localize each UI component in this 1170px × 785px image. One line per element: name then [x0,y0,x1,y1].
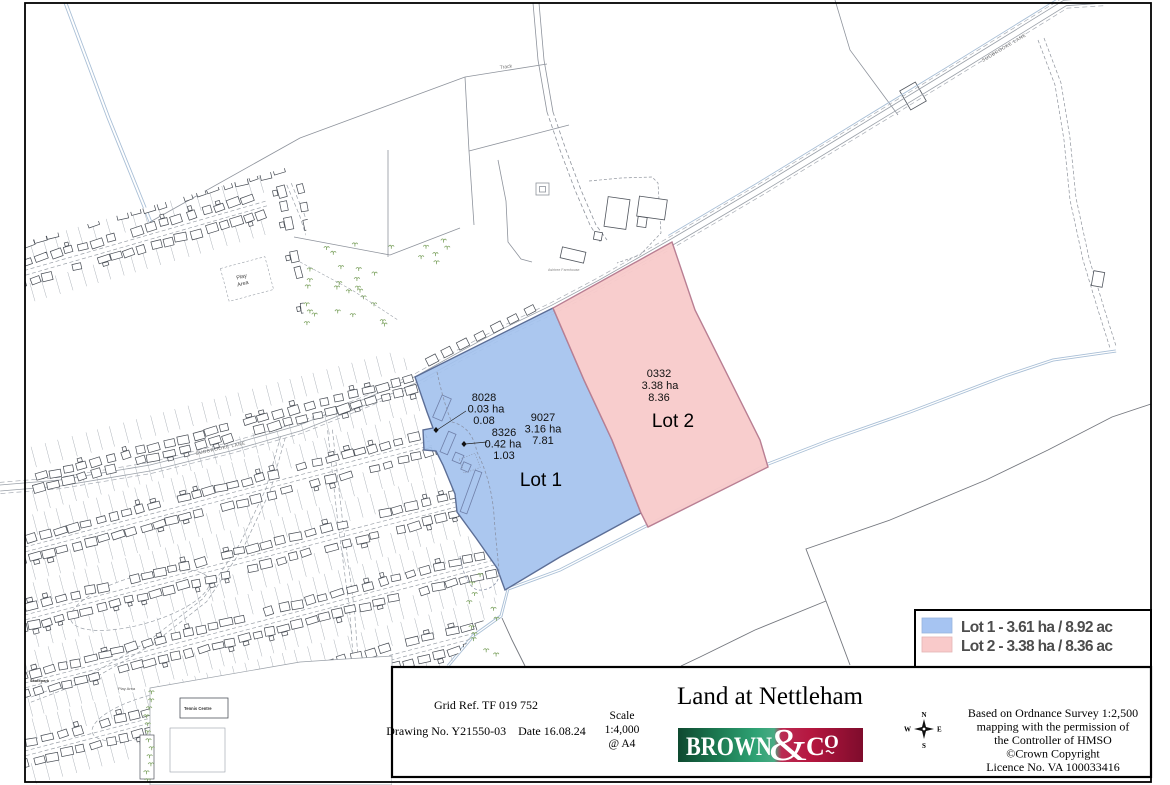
svg-text:Based on Ordnance Survey 1:2,5: Based on Ordnance Survey 1:2,500 [968,706,1138,720]
svg-text:Lot 1 - 3.61 ha / 8.92 ac: Lot 1 - 3.61 ha / 8.92 ac [961,619,1113,636]
svg-text:Land at Nettleham: Land at Nettleham [677,683,864,710]
svg-text:Licence No. VA 100033416: Licence No. VA 100033416 [986,760,1120,774]
svg-text:Play Area: Play Area [118,686,136,691]
svg-text:Skatepark: Skatepark [30,678,50,683]
svg-text:Lot 2: Lot 2 [652,411,694,432]
svg-text:Ashtree Farmhouse: Ashtree Farmhouse [548,268,580,272]
svg-text:Scale: Scale [610,710,635,722]
svg-text:8028: 8028 [472,392,496,404]
svg-text:Drawing No. Y21550-03 Date: Drawing No. Y21550-03 Date 16.08.24 [386,724,586,738]
svg-text:0.42 ha: 0.42 ha [485,439,523,451]
svg-text:0.08: 0.08 [473,415,494,427]
svg-text:3.16 ha: 3.16 ha [525,424,563,436]
svg-text:8.36: 8.36 [648,392,669,404]
svg-text:Lot 1: Lot 1 [520,470,562,491]
svg-text:1:4,000: 1:4,000 [605,724,640,736]
svg-text:1.03: 1.03 [493,450,514,462]
svg-text:E: E [937,726,942,734]
svg-text:BROWN: BROWN [686,732,772,761]
svg-text:0332: 0332 [647,368,671,380]
svg-text:8326: 8326 [492,427,516,439]
svg-text:Grid Ref. TF 019 752: Grid Ref. TF 019 752 [434,698,538,712]
svg-text:0.03 ha: 0.03 ha [468,404,506,416]
svg-text:O: O [824,732,839,753]
svg-text:S: S [922,742,926,750]
svg-text:3.38 ha: 3.38 ha [642,380,680,392]
svg-text:&: & [769,719,807,770]
svg-text:Tennis Centre: Tennis Centre [184,706,212,711]
svg-text:mapping with the permission of: mapping with the permission of [977,720,1130,734]
svg-text:7.81: 7.81 [532,435,553,447]
svg-text:9027: 9027 [531,412,555,424]
svg-text:W: W [904,726,911,734]
svg-text:C: C [806,732,825,761]
svg-text:N: N [921,711,926,719]
svg-text:the Controller of HMSO: the Controller of HMSO [994,733,1112,747]
svg-text:Lot 2 - 3.38 ha / 8.36 ac: Lot 2 - 3.38 ha / 8.36 ac [961,638,1113,655]
svg-text:©Crown Copyright: ©Crown Copyright [1006,747,1100,761]
svg-text:@ A4: @ A4 [609,738,636,750]
